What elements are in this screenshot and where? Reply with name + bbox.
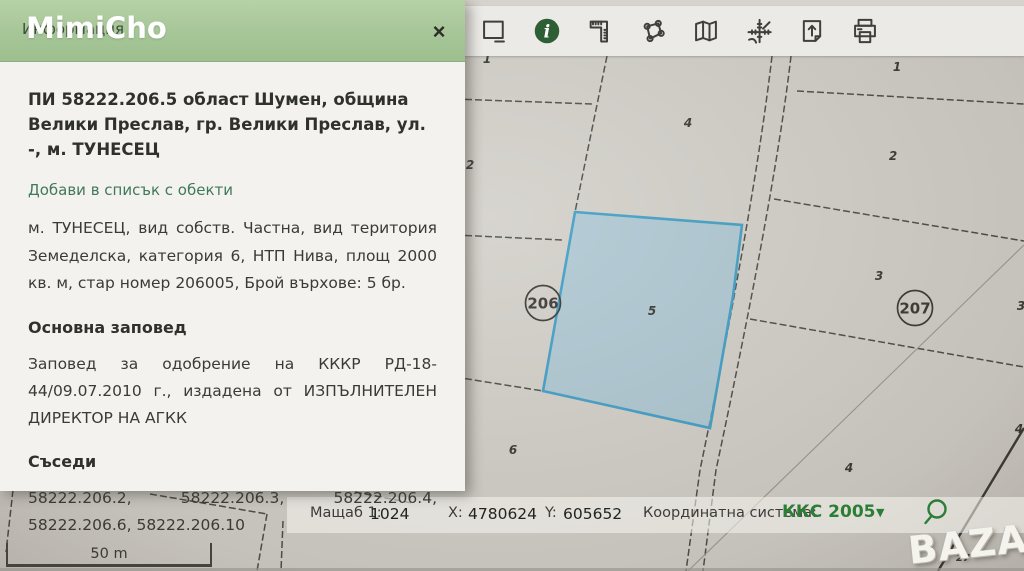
measure-area-icon (639, 17, 667, 45)
parcel-boundary (455, 235, 563, 240)
scale-bar-label: 50 m (8, 546, 210, 562)
parcel-boundary (774, 199, 1024, 241)
parcel-number-label: 4 (844, 461, 853, 475)
parcel-boundary (797, 91, 1024, 104)
parcel-number-label: 6 (509, 443, 517, 457)
parcel-number-label: 2 (889, 149, 897, 163)
export-icon (798, 17, 826, 45)
parcel-number-label: 3 (1017, 299, 1024, 313)
neighbors-heading: Съседи (28, 452, 437, 471)
info-button[interactable]: i (527, 11, 567, 51)
select-extent-icon (480, 17, 508, 45)
parcel-number-label: 4 (683, 116, 692, 130)
measure-distance-icon (586, 17, 614, 45)
print-icon (851, 17, 879, 45)
parcel-number-label: 2 (466, 158, 474, 172)
info-panel-body: ПИ 58222.206.5 област Шумен, община Вели… (0, 62, 465, 540)
map-button[interactable] (686, 11, 726, 51)
svg-text:i: i (544, 22, 551, 42)
x-coordinate-value: 4780624 (468, 505, 537, 523)
export-button[interactable] (792, 11, 832, 51)
measure-area-button[interactable] (633, 11, 673, 51)
info-icon: i (533, 17, 561, 45)
parcel-number-label: 1 (893, 60, 901, 74)
crs-selected-value[interactable]: ККС 2005 (782, 502, 876, 522)
parcel-title: ПИ 58222.206.5 област Шумен, община Вели… (28, 88, 437, 162)
order-text: Заповед за одобрение на КККР РД-18-44/09… (28, 351, 437, 432)
y-coordinate-value: 605652 (563, 505, 622, 523)
parcel-number-label: 5 (648, 304, 656, 318)
info-panel: Информация × ПИ 58222.206.5 област Шумен… (0, 0, 465, 491)
close-icon[interactable]: × (426, 19, 452, 45)
neighbors-text: 58222.206.2, 58222.206.3, 58222.206.4, 5… (28, 485, 437, 539)
cadastral-region-number: 206 (527, 295, 558, 313)
map-scale-bar: 50 m (6, 543, 212, 567)
x-value-text: 4780624 (468, 505, 537, 523)
watermark-mimicho: MimiCho (26, 11, 167, 45)
parcel-boundary (750, 319, 1024, 367)
coordinate-system-icon (745, 17, 773, 45)
add-to-object-list-link[interactable]: Добави в списък с обекти (28, 181, 233, 199)
parcel-description: м. ТУНЕСЕЦ, вид собств. Частна, вид тери… (28, 215, 437, 298)
select-extent-button[interactable] (474, 11, 514, 51)
parcel-number-label: 4 (1014, 422, 1023, 436)
parcel-boundary (455, 377, 543, 391)
coordinate-system-button[interactable] (739, 11, 779, 51)
order-heading: Основна заповед (28, 318, 437, 337)
parcel-boundary (575, 56, 607, 212)
app-window: 1421233564427 206207 i (0, 0, 1024, 571)
map-toolbar: i (460, 6, 1024, 56)
parcel-boundary (455, 99, 592, 104)
cadastral-region-number: 207 (899, 300, 930, 318)
map-icon (692, 17, 720, 45)
selected-parcel[interactable] (543, 212, 742, 428)
y-value-text: 605652 (563, 505, 622, 523)
measure-distance-button[interactable] (580, 11, 620, 51)
chevron-down-icon[interactable]: ▼ (876, 506, 884, 519)
y-coordinate-label: Y: (545, 505, 557, 521)
parcel-number-label: 3 (875, 269, 883, 283)
print-button[interactable] (845, 11, 885, 51)
